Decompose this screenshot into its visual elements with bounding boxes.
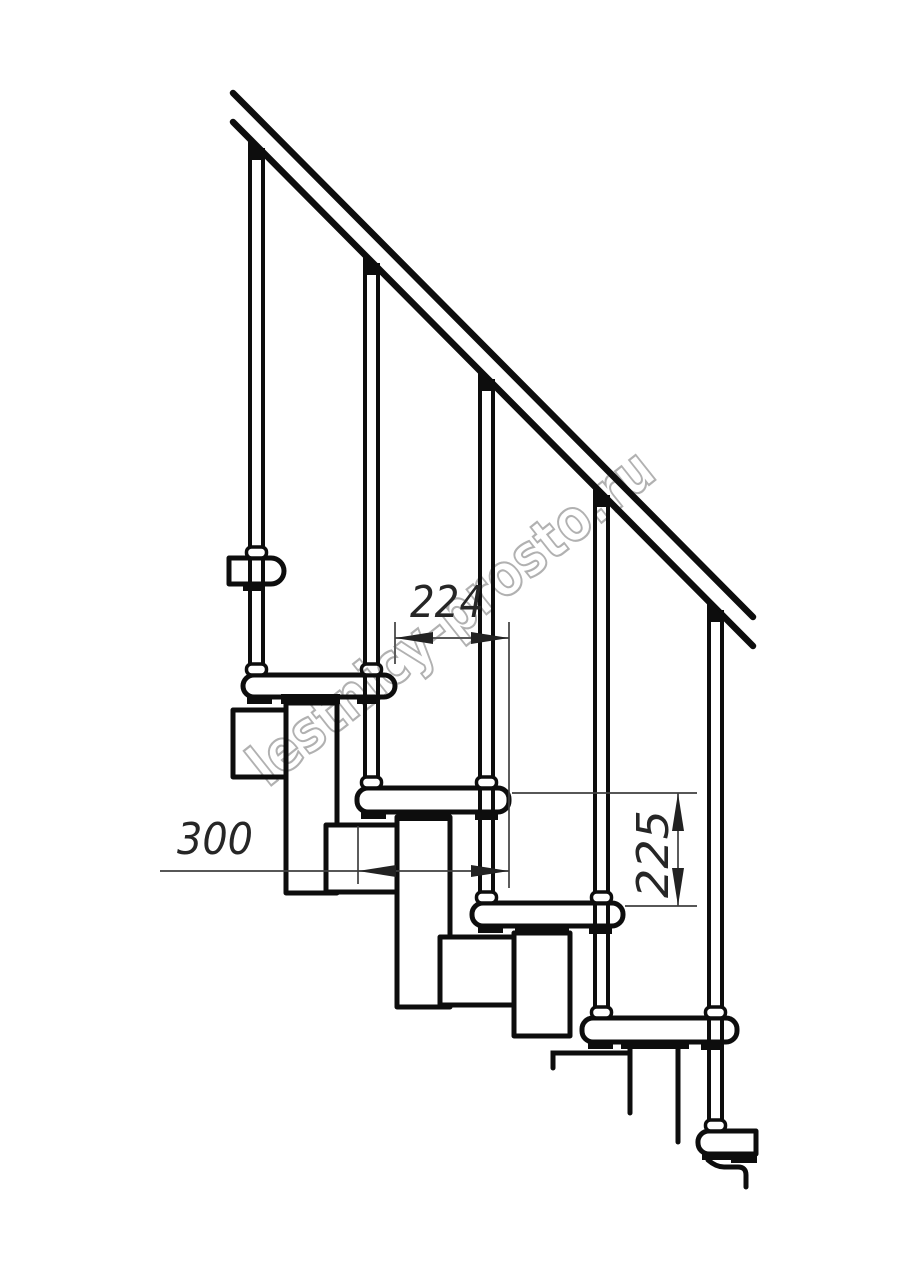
dimension-225: 225 — [512, 793, 697, 906]
module-grip-box-3-partial — [553, 1048, 630, 1113]
baluster-3-collar-base — [477, 892, 497, 903]
drawing-canvas: 224 300 225 lestnicy-prosto.ru — [0, 0, 914, 1280]
baluster-5-collar-upper — [706, 1007, 726, 1018]
bottom-module-hook — [708, 1160, 746, 1187]
module-column-3 — [514, 933, 570, 1036]
tread-4 — [582, 1018, 737, 1042]
dim225-label: 225 — [628, 810, 679, 898]
tread-3 — [472, 903, 623, 926]
baluster-3-collar-upper — [477, 777, 497, 788]
baluster-4-collar-upper — [592, 892, 612, 903]
watermark: lestnicy-prosto.ru — [234, 434, 668, 798]
tread-2 — [357, 788, 509, 812]
gasket-under-tread4 — [621, 1040, 689, 1049]
dim300-label: 300 — [177, 814, 253, 865]
baluster-4 — [592, 485, 612, 1018]
baluster-2-collar-base — [362, 777, 382, 788]
gasket-under-tread3 — [515, 924, 569, 934]
baluster-1 — [247, 137, 267, 675]
fitting-under-tread4-left — [588, 1040, 613, 1049]
module-grip-box-1 — [326, 825, 404, 892]
fitting-under-tread2-left — [361, 810, 386, 819]
fitting-under-tread5-right — [731, 1152, 757, 1163]
dim300-arrow-right — [471, 865, 509, 877]
fitting-under-tread0 — [243, 583, 263, 591]
baluster-1-collar-base — [247, 664, 267, 675]
baluster-1-collar-upper — [247, 547, 267, 558]
tread-5 — [698, 1131, 756, 1154]
gasket-under-tread2 — [399, 810, 451, 821]
tread-upper-flight-end-view — [229, 558, 284, 584]
baluster-5-collar-base — [706, 1120, 726, 1131]
baluster-5 — [706, 600, 726, 1131]
baluster-4-collar-base — [592, 1007, 612, 1018]
fitting-under-tread3-left — [478, 924, 503, 933]
staircase-technical-drawing: 224 300 225 lestnicy-prosto.ru — [0, 0, 914, 1280]
fitting-under-tread5 — [702, 1152, 733, 1160]
module-grip-box-2 — [440, 937, 517, 1005]
fitting-under-tread1-left — [247, 695, 272, 704]
